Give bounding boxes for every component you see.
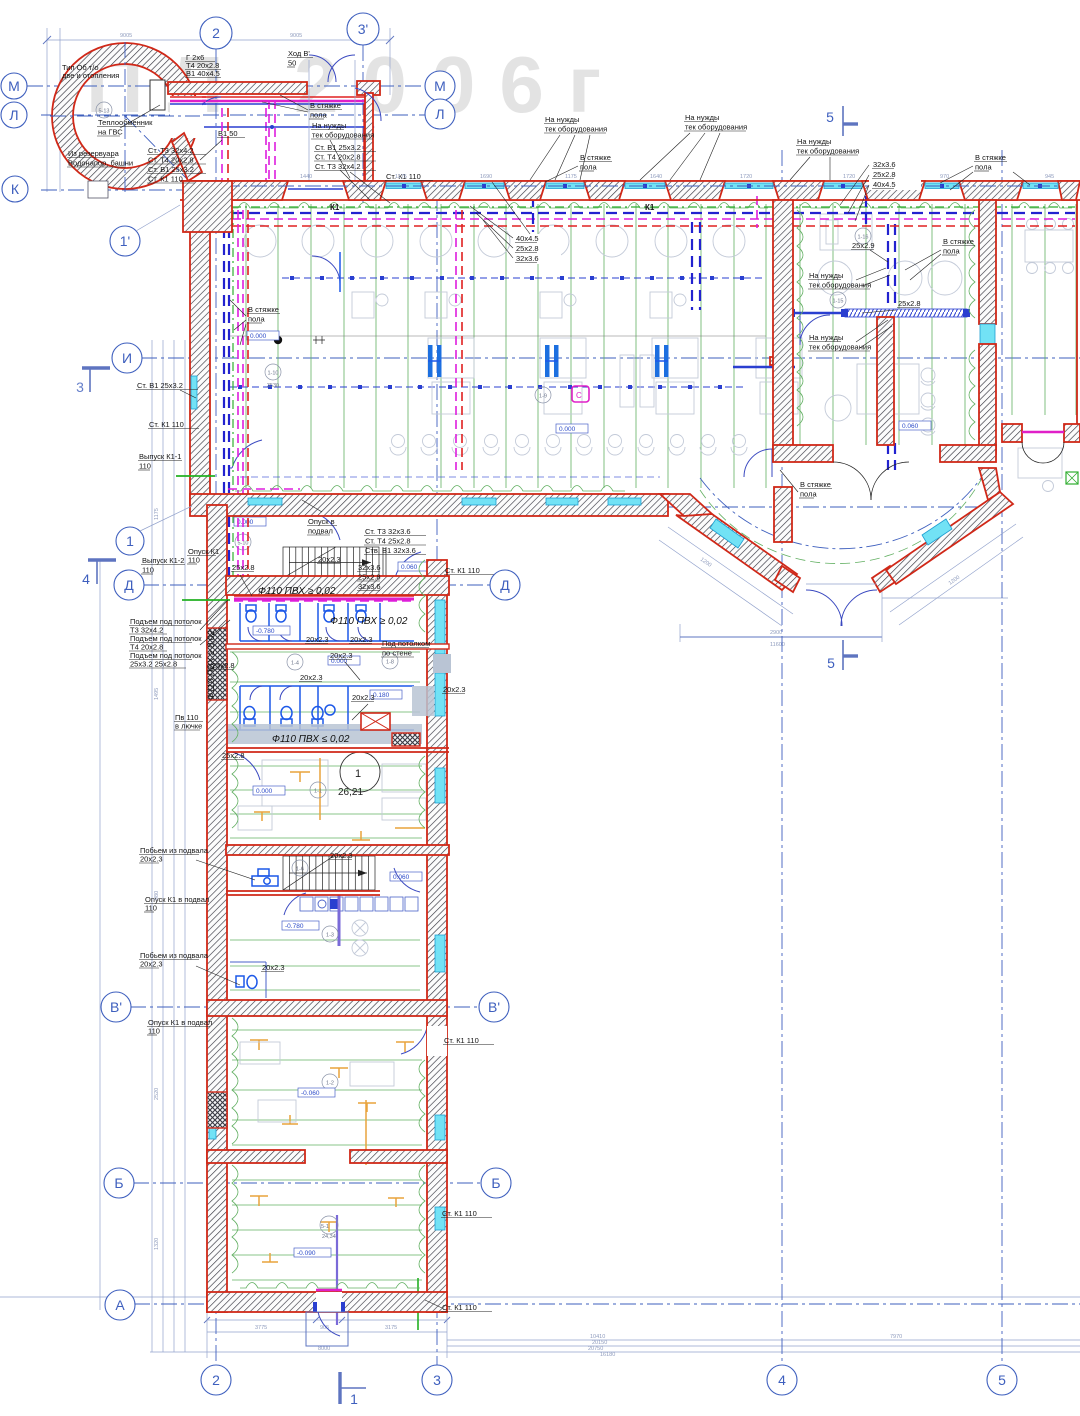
svg-text:8000: 8000 xyxy=(318,1346,330,1352)
svg-text:25х2.8: 25х2.8 xyxy=(212,661,235,670)
svg-text:Ст. К1 110: Ст. К1 110 xyxy=(148,175,183,184)
svg-text:пола: пола xyxy=(975,163,992,172)
svg-text:1-3: 1-3 xyxy=(326,933,334,939)
svg-text:0.000: 0.000 xyxy=(237,519,254,526)
svg-text:Ст. Т3 32х3.6: Ст. Т3 32х3.6 xyxy=(365,527,411,536)
svg-text:20х2.3: 20х2.3 xyxy=(262,963,285,972)
svg-text:2900: 2900 xyxy=(770,630,782,636)
svg-text:20х2.3: 20х2.3 xyxy=(443,685,466,694)
svg-text:Ст. В1 25х3.2: Ст. В1 25х3.2 xyxy=(137,381,183,390)
svg-text:Ст. К1 110: Ст. К1 110 xyxy=(442,1303,477,1312)
svg-text:0.060: 0.060 xyxy=(401,564,418,571)
svg-text:В стяжке: В стяжке xyxy=(800,480,831,489)
svg-text:пола: пола xyxy=(248,315,265,324)
svg-text:9005: 9005 xyxy=(120,33,132,39)
svg-text:25х2.8: 25х2.8 xyxy=(358,573,381,582)
svg-text:С: С xyxy=(576,391,582,400)
svg-text:1-15: 1-15 xyxy=(832,299,843,305)
svg-text:1-16: 1-16 xyxy=(857,235,868,241)
svg-text:И: И xyxy=(122,350,132,366)
svg-text:В1 50: В1 50 xyxy=(218,129,238,138)
svg-text:В стяжке: В стяжке xyxy=(943,237,974,246)
svg-text:40х4.5: 40х4.5 xyxy=(873,180,896,189)
svg-text:Ст. Т3 32х4.2: Ст. Т3 32х4.2 xyxy=(315,162,361,171)
svg-text:Д: Д xyxy=(124,577,134,593)
svg-text:На нужды: На нужды xyxy=(809,271,843,280)
svg-text:3': 3' xyxy=(358,21,368,37)
svg-text:Опуск в: Опуск в xyxy=(308,517,335,526)
svg-text:1-8: 1-8 xyxy=(386,660,394,666)
svg-text:В1 40х4.5: В1 40х4.5 xyxy=(186,69,220,78)
svg-text:пола: пола xyxy=(580,163,597,172)
svg-text:Ф110 ПВХ ≤ 0,02: Ф110 ПВХ ≤ 0,02 xyxy=(272,734,350,745)
svg-text:-0.780: -0.780 xyxy=(285,923,304,930)
svg-text:Ст. Т4 20х2.8: Ст. Т4 20х2.8 xyxy=(315,153,361,162)
svg-text:Выпуск К1-2: Выпуск К1-2 xyxy=(142,556,184,565)
svg-text:1175: 1175 xyxy=(565,174,577,180)
svg-text:-0.780: -0.780 xyxy=(256,628,275,635)
svg-text:25х2.8: 25х2.8 xyxy=(222,751,245,760)
svg-text:Водонапор. башни: Водонапор. башни xyxy=(68,159,133,168)
svg-text:в лючке: в лючке xyxy=(175,722,202,731)
svg-text:20х2.3: 20х2.3 xyxy=(140,960,163,969)
svg-text:В': В' xyxy=(488,999,500,1015)
svg-text:Ст. Т3 32х4.2: Ст. Т3 32х4.2 xyxy=(148,146,194,155)
svg-text:К: К xyxy=(11,181,20,197)
svg-text:0.180: 0.180 xyxy=(373,692,390,699)
svg-text:Д: Д xyxy=(500,577,510,593)
svg-text:0.000: 0.000 xyxy=(256,788,273,795)
svg-text:26,21: 26,21 xyxy=(338,787,363,798)
svg-text:1: 1 xyxy=(126,533,134,549)
svg-text:20х2.3: 20х2.3 xyxy=(350,635,373,644)
svg-text:-0.090: -0.090 xyxy=(297,1250,316,1257)
svg-text:Ств. В1 32х3.6: Ств. В1 32х3.6 xyxy=(365,546,416,555)
svg-text:1690: 1690 xyxy=(480,174,492,180)
svg-text:1175: 1175 xyxy=(395,174,407,180)
svg-text:1: 1 xyxy=(355,768,361,780)
svg-text:На нужды: На нужды xyxy=(545,115,579,124)
svg-text:две и отопления: две и отопления xyxy=(62,71,119,80)
svg-text:1440: 1440 xyxy=(300,174,312,180)
svg-text:М: М xyxy=(8,78,20,94)
svg-text:20х2.3: 20х2.3 xyxy=(330,851,353,860)
svg-text:25х2.8: 25х2.8 xyxy=(232,563,255,572)
svg-text:по стене: по стене xyxy=(382,649,412,658)
svg-text:К1: К1 xyxy=(330,203,340,212)
svg-text:Ст. Т4 20х2.8: Ст. Т4 20х2.8 xyxy=(148,156,194,165)
svg-text:5-13: 5-13 xyxy=(98,109,109,115)
svg-text:На нужды: На нужды xyxy=(797,137,831,146)
svg-text:Ход В': Ход В' xyxy=(288,49,310,58)
svg-text:2: 2 xyxy=(212,1372,220,1388)
svg-text:В стяжке: В стяжке xyxy=(310,101,341,110)
svg-text:110: 110 xyxy=(142,566,154,575)
svg-text:Ст. В1 25х3.2: Ст. В1 25х3.2 xyxy=(148,165,194,174)
svg-text:110: 110 xyxy=(148,1027,160,1036)
svg-text:1640: 1640 xyxy=(650,174,662,180)
svg-text:5: 5 xyxy=(998,1372,1006,1388)
svg-text:В': В' xyxy=(110,999,122,1015)
svg-text:Теплообменник: Теплообменник xyxy=(98,118,153,127)
svg-text:40х4.5: 40х4.5 xyxy=(516,234,539,243)
svg-text:4: 4 xyxy=(778,1372,786,1388)
svg-text:тек оборудования: тек оборудования xyxy=(545,125,607,134)
svg-text:А: А xyxy=(115,1297,125,1313)
svg-text:1': 1' xyxy=(120,233,130,249)
svg-text:25х2.8: 25х2.8 xyxy=(873,170,896,179)
svg-text:1495: 1495 xyxy=(154,688,160,700)
svg-text:1: 1 xyxy=(350,1391,358,1407)
svg-text:Ст. К1 110: Ст. К1 110 xyxy=(149,420,184,429)
svg-text:5-1: 5-1 xyxy=(321,1224,329,1230)
svg-text:Ст. К1 110: Ст. К1 110 xyxy=(445,566,480,575)
svg-text:16180: 16180 xyxy=(600,1352,615,1358)
svg-text:Выпуск К1-1: Выпуск К1-1 xyxy=(139,452,181,461)
svg-text:1-6: 1-6 xyxy=(296,867,304,873)
svg-text:970: 970 xyxy=(940,174,949,180)
svg-text:32х3.6: 32х3.6 xyxy=(873,160,896,169)
svg-text:945: 945 xyxy=(1045,174,1054,180)
svg-text:2: 2 xyxy=(212,25,220,41)
svg-text:1-2: 1-2 xyxy=(326,1081,334,1087)
svg-text:Под потолком: Под потолком xyxy=(382,639,430,648)
svg-text:5-10: 5-10 xyxy=(237,541,248,547)
svg-text:тек оборудования: тек оборудования xyxy=(809,281,871,290)
svg-text:Ст. Т4 25х2.8: Ст. Т4 25х2.8 xyxy=(365,537,411,546)
svg-text:24,34: 24,34 xyxy=(322,1234,336,1240)
svg-text:110: 110 xyxy=(188,556,200,565)
svg-text:Б: Б xyxy=(114,1175,123,1191)
svg-text:Ф110 ПВХ ≥ 0,02: Ф110 ПВХ ≥ 0,02 xyxy=(258,586,336,597)
svg-text:20х2.3: 20х2.3 xyxy=(330,651,353,660)
svg-text:0.060: 0.060 xyxy=(393,874,410,881)
svg-text:50: 50 xyxy=(288,59,296,68)
svg-text:2520: 2520 xyxy=(154,1088,160,1100)
svg-text:1-1: 1-1 xyxy=(314,789,322,795)
svg-text:Л: Л xyxy=(9,107,18,123)
svg-text:1-9: 1-9 xyxy=(539,394,547,400)
svg-text:20х2.3: 20х2.3 xyxy=(300,673,323,682)
svg-text:4: 4 xyxy=(82,571,90,587)
svg-text:3775: 3775 xyxy=(255,1325,267,1331)
svg-text:1175: 1175 xyxy=(154,508,160,520)
svg-text:110: 110 xyxy=(139,462,151,471)
svg-text:20х2.3: 20х2.3 xyxy=(352,693,375,702)
svg-text:пола: пола xyxy=(310,111,327,120)
svg-text:3: 3 xyxy=(433,1372,441,1388)
svg-text:25х2.8: 25х2.8 xyxy=(898,299,921,308)
svg-text:Ст. К1 110: Ст. К1 110 xyxy=(444,1036,479,1045)
svg-text:25х2.8: 25х2.8 xyxy=(516,244,539,253)
svg-text:1-4: 1-4 xyxy=(291,661,299,667)
svg-text:1720: 1720 xyxy=(843,174,855,180)
svg-text:3530: 3530 xyxy=(267,383,279,389)
svg-text:В стяжке: В стяжке xyxy=(248,305,279,314)
svg-text:20х2.3: 20х2.3 xyxy=(306,635,329,644)
svg-text:9005: 9005 xyxy=(290,33,302,39)
svg-text:Ст. К1 110: Ст. К1 110 xyxy=(442,1209,477,1218)
svg-text:1720: 1720 xyxy=(740,174,752,180)
svg-text:На нужды: На нужды xyxy=(809,333,843,342)
svg-text:В стяжке: В стяжке xyxy=(580,153,611,162)
svg-text:на ГВС: на ГВС xyxy=(98,128,123,137)
svg-text:На нужды: На нужды xyxy=(685,113,719,122)
svg-text:3: 3 xyxy=(76,379,84,395)
svg-text:20х2.3: 20х2.3 xyxy=(140,855,163,864)
svg-text:20150: 20150 xyxy=(592,1340,607,1346)
svg-text:0.060: 0.060 xyxy=(902,423,919,430)
svg-text:М: М xyxy=(434,78,446,94)
svg-text:Ст. В1 25х3.2: Ст. В1 25х3.2 xyxy=(315,143,361,152)
svg-text:-0.060: -0.060 xyxy=(301,1090,320,1097)
svg-text:1320: 1320 xyxy=(154,1238,160,1250)
svg-text:20х2.3: 20х2.3 xyxy=(318,555,341,564)
svg-text:Из резервуара: Из резервуара xyxy=(68,149,120,158)
svg-text:подвал: подвал xyxy=(308,527,333,536)
svg-text:пола: пола xyxy=(943,247,960,256)
svg-text:5: 5 xyxy=(827,655,835,671)
svg-text:На нужды: На нужды xyxy=(312,121,346,130)
svg-text:1-10: 1-10 xyxy=(267,371,278,377)
svg-text:Л: Л xyxy=(435,106,444,122)
svg-text:11600: 11600 xyxy=(770,642,785,648)
svg-text:980: 980 xyxy=(154,891,160,900)
svg-text:пола: пола xyxy=(800,490,817,499)
svg-text:Б: Б xyxy=(491,1175,500,1191)
svg-text:3175: 3175 xyxy=(385,1325,397,1331)
svg-text:25х3.2 25х2.8: 25х3.2 25х2.8 xyxy=(130,660,177,669)
svg-text:0.000: 0.000 xyxy=(250,333,267,340)
svg-text:32х3.6: 32х3.6 xyxy=(358,563,381,572)
svg-text:тек оборудования: тек оборудования xyxy=(685,123,747,132)
svg-text:0.000: 0.000 xyxy=(559,426,576,433)
svg-text:тек оборудования: тек оборудования xyxy=(312,131,374,140)
svg-text:32х3.6: 32х3.6 xyxy=(516,254,539,263)
svg-text:25х2.9: 25х2.9 xyxy=(852,241,875,250)
svg-text:110: 110 xyxy=(145,904,157,913)
svg-text:тек оборудования: тек оборудования xyxy=(797,147,859,156)
svg-text:В стяжке: В стяжке xyxy=(975,153,1006,162)
svg-text:К1: К1 xyxy=(645,203,655,212)
svg-text:5: 5 xyxy=(826,109,834,125)
svg-text:32х3.6: 32х3.6 xyxy=(358,582,381,591)
svg-text:7970: 7970 xyxy=(890,1334,902,1340)
svg-text:Ф110 ПВХ ≥ 0,02: Ф110 ПВХ ≥ 0,02 xyxy=(330,616,408,627)
